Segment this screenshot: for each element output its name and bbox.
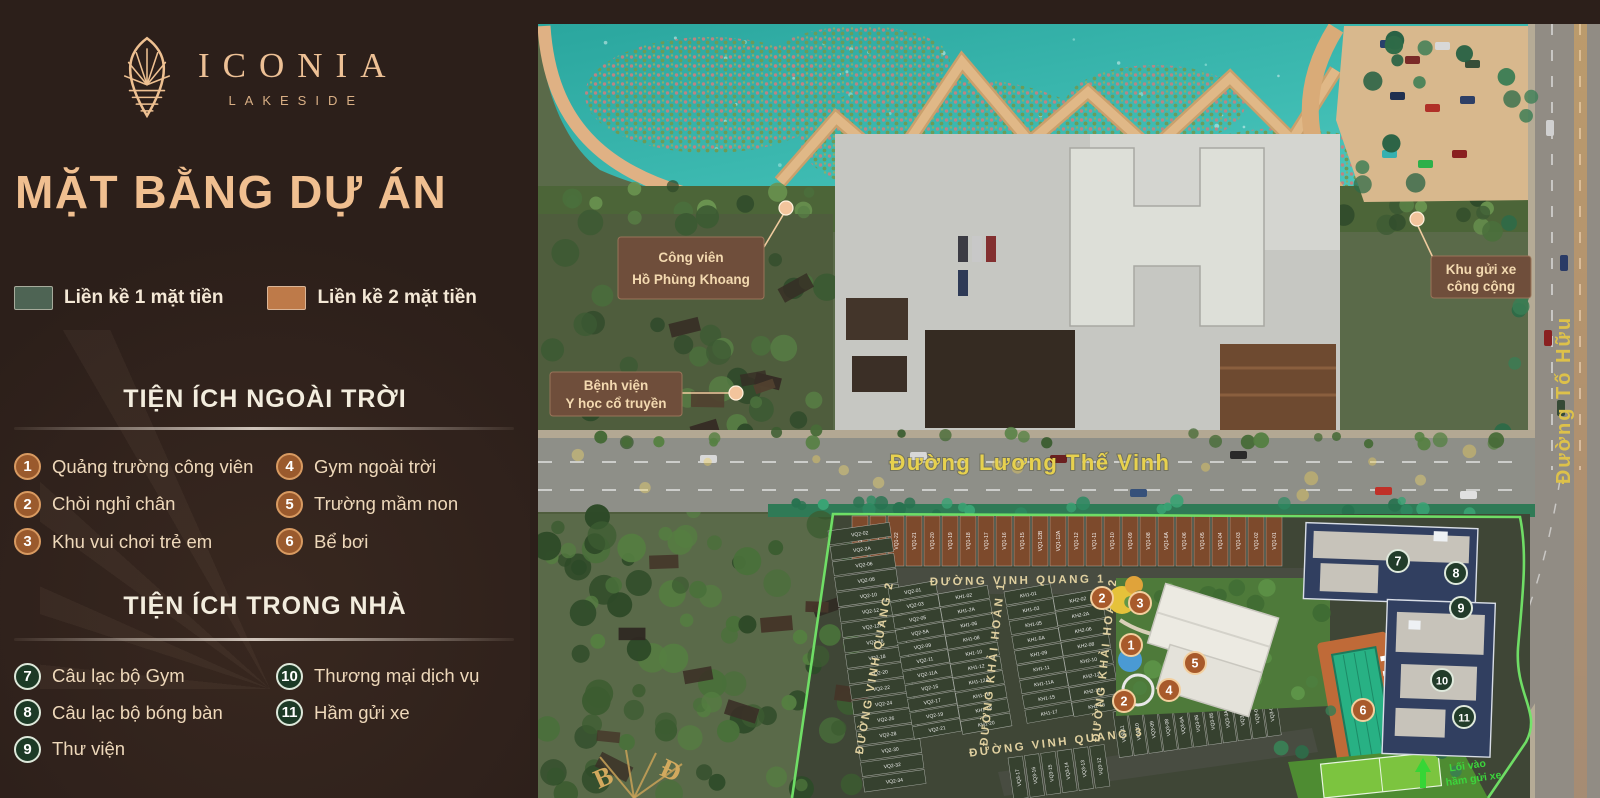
map-marker-number: 6 (1360, 704, 1367, 718)
legend-label: Liền kề 1 mặt tiền (64, 287, 223, 309)
tree (805, 392, 822, 409)
tree (1382, 134, 1400, 152)
tree (1277, 75, 1280, 78)
tree (566, 195, 579, 208)
street-light-glow (1574, 24, 1587, 798)
amenity-label: Câu lạc bộ Gym (52, 665, 185, 687)
tree (594, 431, 607, 444)
amenity-label: Bể bơi (314, 531, 368, 553)
tree (798, 206, 811, 219)
lotus-patch (770, 26, 950, 94)
tree (1524, 90, 1538, 104)
tree (1133, 681, 1147, 695)
tree (672, 577, 689, 594)
amenity-number-badge: 9 (14, 736, 41, 763)
lot-parcel-label: VQ1-18 (966, 532, 972, 549)
road-label-luong-the-vinh: Đường Lương Thế Vinh (890, 450, 1171, 475)
divider (14, 427, 514, 430)
tree (1228, 580, 1245, 597)
tree (1209, 435, 1222, 448)
legend: Liền kề 1 mặt tiền Liền kề 2 mặt tiền (14, 286, 522, 310)
tree (655, 712, 677, 734)
tree (658, 527, 672, 541)
tree (819, 624, 841, 646)
amenity-number-badge: 11 (276, 699, 303, 726)
map-marker-10: 10 (1431, 669, 1453, 691)
tree (1325, 705, 1336, 716)
amenity-item-4: 4 Gym ngoài trời (276, 448, 526, 486)
tree (1253, 432, 1269, 448)
tree (1241, 435, 1255, 449)
tree (551, 239, 579, 267)
amenity-label: Trường mầm non (314, 493, 458, 515)
tree (778, 163, 782, 167)
map-marker-7: 7 (1387, 550, 1409, 572)
map-marker-2: 2 (1113, 690, 1135, 712)
lot-parcel-label: VQ1-09 (1128, 532, 1134, 549)
amenity-label: Quảng trường công viên (52, 456, 253, 478)
amenity-item-6: 6 Bể bơi (276, 523, 526, 561)
tree (667, 180, 679, 192)
tree (1385, 36, 1403, 54)
tree (1201, 463, 1210, 472)
tree (1476, 206, 1490, 220)
masterplan-map: VQ1-24VQ1-23VQ1-22VQ1-21VQ1-20VQ1-19VQ1-… (530, 0, 1600, 798)
tree (1332, 432, 1341, 441)
map-marker-11: 11 (1453, 706, 1475, 728)
brand-subname: LAKESIDE (228, 93, 364, 108)
tree (626, 570, 652, 596)
map-frame-top (530, 0, 1600, 24)
tree (790, 411, 807, 428)
tree (781, 695, 796, 710)
tree (804, 187, 815, 198)
map-marker-number: 5 (1192, 657, 1199, 671)
tree (1157, 504, 1167, 514)
tree (1406, 173, 1426, 193)
tree (689, 581, 707, 599)
amenity-item-7: 7 Câu lạc bộ Gym (14, 658, 276, 695)
tree (1304, 471, 1318, 485)
tree (1073, 38, 1076, 41)
lot-parcel-label: VQ1-03 (1236, 532, 1242, 549)
tree (1258, 579, 1276, 597)
amenity-number-badge: 8 (14, 699, 41, 726)
house-roof (691, 391, 725, 407)
house-roof (805, 601, 828, 612)
tree (763, 569, 791, 597)
amenity-item-10: 10 Thương mại dịch vụ (276, 658, 526, 695)
amenity-item-2: 2 Chòi nghỉ chân (14, 486, 276, 524)
tree (791, 498, 800, 507)
tree (707, 535, 722, 550)
tree (551, 521, 564, 534)
indoor-amenities-list: 7 Câu lạc bộ Gym 8 Câu lạc bộ bóng bàn 9… (14, 658, 526, 768)
map-marker-5: 5 (1184, 652, 1206, 674)
lot-parcel-label: VQ1-12A (1056, 530, 1062, 551)
tree (1456, 45, 1473, 62)
tree (650, 318, 665, 333)
brand-name: ICONIA (198, 46, 398, 86)
tree (1291, 686, 1305, 700)
amenity-item-8: 8 Câu lạc bộ bóng bàn (14, 695, 276, 732)
tree (709, 774, 726, 791)
tree (958, 503, 967, 512)
tree (639, 482, 650, 493)
tree (1456, 207, 1471, 222)
tree (589, 196, 602, 209)
tree (701, 692, 722, 713)
tree (769, 253, 782, 266)
amenity-item-3: 3 Khu vui chơi trẻ em (14, 523, 276, 561)
lot-parcel-label: VQ1-15 (1020, 532, 1026, 549)
map-marker-number: 7 (1395, 555, 1402, 569)
tree (1512, 298, 1529, 315)
tree (1503, 90, 1521, 108)
tree (540, 759, 567, 786)
map-marker-8: 8 (1445, 562, 1467, 584)
tree (1295, 745, 1309, 759)
lot-parcel-label: VQ1-6A (1164, 531, 1170, 549)
tree (1144, 660, 1162, 678)
map-marker-number: 2 (1099, 592, 1106, 606)
map-marker-number: 11 (1458, 713, 1470, 725)
callout-line: Y học cổ truyền (565, 396, 666, 411)
tree (1417, 437, 1430, 450)
legend-label: Liền kề 2 mặt tiền (317, 287, 476, 309)
tree (653, 436, 664, 447)
tree (812, 455, 820, 463)
legend-swatch-orange (267, 286, 306, 310)
lot-parcel-label: VQ1-10 (1110, 532, 1116, 549)
tree (831, 720, 846, 735)
tree (1205, 63, 1208, 66)
amenity-label: Hầm gửi xe (314, 702, 410, 724)
tree (624, 700, 644, 720)
lot-parcel-label: VQ1-21 (912, 532, 918, 549)
tree (1391, 54, 1403, 66)
outdoor-amenities-list: 1 Quảng trường công viên 2 Chòi nghỉ châ… (14, 448, 526, 561)
tree (1364, 439, 1373, 448)
tree (1076, 497, 1090, 511)
tree (535, 716, 560, 741)
tree (709, 438, 718, 447)
tree (674, 525, 697, 548)
map-marker-number: 10 (1436, 676, 1448, 688)
lot-parcel-label: VQ1-05 (1200, 532, 1206, 549)
map-marker-6: 6 (1352, 699, 1374, 721)
map-marker-number: 9 (1458, 602, 1465, 616)
tree (771, 427, 782, 438)
map-marker-9: 9 (1450, 597, 1472, 619)
amenity-number-badge: 4 (276, 453, 303, 480)
callout-line: Công viên (658, 250, 723, 265)
tree (617, 534, 646, 563)
map-marker-number: 3 (1137, 597, 1144, 611)
map-marker-number: 4 (1166, 684, 1173, 698)
callout-line: Hồ Phùng Khoang (632, 272, 750, 287)
tree (1066, 502, 1076, 512)
section-title-outdoor: TIỆN ÍCH NGOÀI TRỜI (0, 385, 530, 414)
tree (572, 645, 590, 663)
tree (1498, 68, 1516, 86)
tree (1243, 126, 1246, 129)
lot-parcel-label: VQ1-19 (948, 532, 954, 549)
brand-logo: ICONIA LAKESIDE (116, 36, 385, 118)
tree (1363, 72, 1382, 91)
house-roof (619, 628, 646, 640)
tree (751, 336, 771, 356)
lot-parcel-label: VQ1-22 (894, 532, 900, 549)
house-roof (649, 555, 679, 570)
tree (659, 644, 688, 673)
tree (572, 449, 584, 461)
tree (1274, 741, 1289, 756)
map-marker-4: 4 (1158, 679, 1180, 701)
tree (628, 182, 642, 196)
house-roof (760, 615, 793, 633)
tree (768, 540, 783, 555)
lot-parcel-label: VQ1-08 (1146, 532, 1152, 549)
tree (768, 183, 787, 202)
legend-item-lk2: Liền kề 2 mặt tiền (267, 286, 476, 310)
tree (570, 600, 597, 627)
brand-text: ICONIA LAKESIDE (198, 46, 385, 108)
tree (795, 779, 808, 792)
callout-line: công cộng (1447, 279, 1515, 294)
tree (1413, 76, 1426, 89)
tree (588, 521, 617, 550)
tree (604, 41, 608, 45)
tree (1519, 109, 1533, 123)
tree (722, 671, 747, 696)
tree (1018, 431, 1030, 443)
lot-parcel-label: VQ1-12 (1074, 532, 1080, 549)
tree (585, 679, 613, 707)
amenity-label: Gym ngoài trời (314, 456, 436, 478)
tree (1433, 432, 1448, 447)
lot-parcel-label: VQ1-01 (1272, 532, 1278, 549)
amenity-number-badge: 7 (14, 663, 41, 690)
amenity-number-badge: 2 (14, 491, 41, 518)
tree (1415, 475, 1426, 486)
sidebar-panel: ICONIA LAKESIDE MẶT BẰNG DỰ ÁN Liền kề 1… (0, 0, 530, 798)
amenity-item-11: 11 Hầm gửi xe (276, 695, 526, 732)
tree (1306, 676, 1318, 688)
divider (14, 638, 514, 641)
lot-parcel-label: VQ1-16 (1002, 532, 1008, 549)
amenity-item-5: 5 Trường mầm non (276, 486, 526, 524)
tree (766, 766, 787, 787)
tree (706, 340, 731, 365)
tree (578, 210, 604, 236)
amenity-label: Câu lạc bộ bóng bàn (52, 702, 223, 724)
tree (1297, 489, 1309, 501)
callout-line: Khu gửi xe (1446, 262, 1517, 277)
tree (866, 496, 876, 506)
tree (1398, 497, 1406, 505)
tree (1463, 444, 1477, 458)
tree (1508, 357, 1521, 370)
amenity-item-9: 9 Thư viện (14, 731, 276, 768)
lot-parcel-label: VQ1-12B (1038, 530, 1044, 551)
amenity-label: Khu vui chơi trẻ em (52, 531, 212, 553)
tree (750, 396, 762, 408)
tree (853, 497, 864, 508)
road-label-to-huu: Đường Tố Hữu (1553, 316, 1575, 484)
callout-line: Bệnh viện (584, 378, 649, 393)
tree (721, 627, 738, 644)
tree (622, 437, 632, 447)
lot-parcel-label: VQ1-06 (1182, 532, 1188, 549)
tree (1188, 428, 1198, 438)
tree (1356, 160, 1370, 174)
tree (573, 313, 597, 337)
tree (942, 498, 953, 509)
amenity-label: Thương mại dịch vụ (314, 665, 479, 687)
tree (541, 338, 564, 361)
tree (939, 429, 951, 441)
amenity-label: Chòi nghỉ chân (52, 493, 175, 515)
tree (689, 346, 709, 366)
tree (591, 285, 613, 307)
tree (590, 634, 605, 649)
tree (607, 592, 632, 617)
map-marker-1: 1 (1120, 634, 1142, 656)
tree (839, 465, 849, 475)
map-frame-left (530, 0, 538, 798)
legend-swatch-green (14, 286, 53, 310)
lot-parcel-label: VQ1-02 (1254, 532, 1260, 549)
amenity-number-badge: 6 (276, 528, 303, 555)
tree (627, 637, 651, 661)
tree (1278, 497, 1291, 510)
tree (1314, 433, 1323, 442)
map-marker-number: 1 (1128, 639, 1135, 653)
legend-item-lk1: Liền kề 1 mặt tiền (14, 286, 223, 310)
tree (810, 424, 822, 436)
section-title-indoor: TIỆN ÍCH TRONG NHÀ (0, 592, 530, 621)
amenity-number-badge: 10 (276, 663, 303, 690)
tree (632, 684, 645, 697)
tree (1488, 432, 1504, 448)
tree (1368, 457, 1376, 465)
lotus-leaf-logo-icon (116, 36, 178, 118)
tree (1170, 494, 1183, 507)
tree (1418, 40, 1433, 55)
tree (738, 615, 756, 633)
tree (704, 458, 712, 466)
amenity-number-badge: 3 (14, 528, 41, 555)
tree (1354, 175, 1372, 193)
tree (806, 435, 820, 449)
tree (793, 630, 807, 644)
hospital-complex (835, 134, 1340, 432)
tree (818, 499, 829, 510)
amenity-number-badge: 1 (14, 453, 41, 480)
page-title: MẶT BẰNG DỰ ÁN (15, 165, 522, 219)
tree (874, 496, 888, 510)
tree (717, 720, 740, 743)
tree (696, 205, 719, 228)
tree (628, 211, 642, 225)
tree (904, 497, 915, 508)
dark-roof-building (925, 330, 1075, 428)
tree (1312, 604, 1330, 622)
lot-parcel-label: VQ1-17 (984, 532, 990, 549)
tree (873, 477, 885, 489)
tree (1501, 215, 1517, 231)
tree (770, 335, 797, 362)
lot-parcel-label: VQ1-20 (930, 532, 936, 549)
brown-roof-building (1220, 344, 1336, 430)
tree (605, 577, 622, 594)
tree (1389, 214, 1406, 231)
tree (677, 725, 702, 750)
map-marker-number: 8 (1453, 567, 1460, 581)
amenity-item-1: 1 Quảng trường công viên (14, 448, 276, 486)
tree (1041, 437, 1052, 448)
map-marker-2: 2 (1091, 587, 1113, 609)
tree (1416, 502, 1429, 515)
map-marker-number: 2 (1121, 695, 1128, 709)
tree (897, 429, 905, 437)
amenity-label: Thư viện (52, 738, 125, 760)
tree (733, 547, 761, 575)
tree (1482, 221, 1503, 242)
map-marker-3: 3 (1129, 592, 1151, 614)
tree (1005, 427, 1018, 440)
tree (736, 195, 754, 213)
tree (1117, 61, 1120, 64)
lot-parcel-label: VQ1-04 (1218, 532, 1224, 549)
tree (675, 213, 698, 236)
lot-parcel-label: VQ1-11 (1092, 532, 1098, 549)
tree (680, 613, 694, 627)
tree (841, 774, 863, 796)
tree (619, 734, 635, 750)
amenity-number-badge: 5 (276, 491, 303, 518)
masterplan-poster: ICONIA LAKESIDE MẶT BẰNG DỰ ÁN Liền kề 1… (0, 0, 1600, 798)
tree (1415, 201, 1427, 213)
tree (571, 560, 587, 576)
tree (674, 335, 693, 354)
public-parking-area (1336, 26, 1532, 202)
tree (561, 543, 576, 558)
